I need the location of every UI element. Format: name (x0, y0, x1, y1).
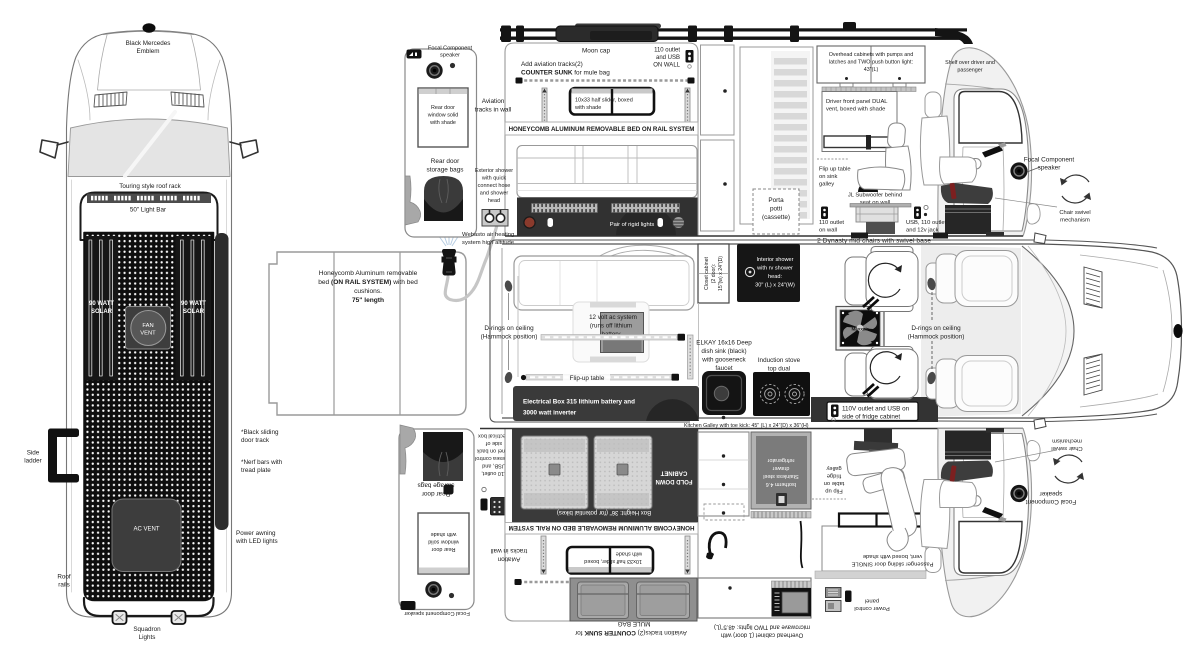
svg-text:Induction stove: Induction stove (758, 357, 801, 364)
svg-text:15"(w) x 24"(D): 15"(w) x 24"(D) (718, 256, 724, 291)
svg-text:Flip up: Flip up (825, 488, 842, 494)
svg-text:HONEYCOMB ALUMINUM REMOVABLE B: HONEYCOMB ALUMINUM REMOVABLE BED ON RAIL… (509, 524, 695, 531)
svg-text:connect hose: connect hose (478, 183, 511, 189)
svg-text:12 volt ac system: 12 volt ac system (589, 314, 637, 321)
svg-text:faucet: faucet (715, 365, 732, 372)
svg-text:fridge: fridge (827, 473, 842, 479)
svg-text:with shade: with shade (616, 551, 643, 557)
svg-text:potti: potti (770, 206, 782, 213)
svg-text:JL Subwoofer behind: JL Subwoofer behind (848, 193, 902, 199)
svg-text:Overhead cabinet (1 door) with: Overhead cabinet (1 door) with (721, 632, 803, 638)
svg-text:tracks in wall: tracks in wall (475, 107, 512, 114)
svg-text:storage bags: storage bags (427, 167, 464, 174)
svg-text:Add aviation tracks(2): Add aviation tracks(2) (521, 61, 583, 68)
svg-text:SOLAR: SOLAR (91, 309, 113, 315)
svg-text:SOLAR: SOLAR (183, 309, 205, 315)
svg-text:mechanism: mechanism (1060, 218, 1090, 224)
svg-text:drawer: drawer (772, 465, 789, 471)
svg-text:dish sink (black): dish sink (black) (701, 348, 746, 355)
svg-text:110 outlet,: 110 outlet, (481, 470, 507, 476)
svg-text:with LED lights: with LED lights (235, 538, 278, 545)
svg-text:with shade: with shade (429, 120, 456, 126)
svg-text:panel: panel (865, 598, 879, 604)
svg-text:110 outlet: 110 outlet (819, 220, 844, 226)
svg-text:and shower: and shower (480, 191, 509, 197)
svg-text:43"(L): 43"(L) (864, 67, 879, 73)
svg-text:Focal Component: Focal Component (1024, 157, 1075, 164)
svg-text:mechanism: mechanism (1052, 438, 1082, 444)
svg-text:Rear door: Rear door (431, 158, 460, 165)
svg-text:passenger: passenger (957, 68, 982, 74)
svg-text:ladder: ladder (24, 458, 42, 465)
svg-text:(2 door):: (2 door): (711, 264, 717, 284)
svg-text:table on: table on (824, 480, 845, 486)
svg-text:with shade: with shade (574, 105, 601, 111)
svg-text:Lights: Lights (139, 634, 156, 641)
svg-text:speaker: speaker (1038, 165, 1062, 172)
svg-text:window solid: window solid (427, 113, 459, 119)
svg-text:cushions.: cushions. (354, 288, 382, 295)
svg-text:Interior shower: Interior shower (757, 257, 794, 263)
svg-text:microwave and TWO lights: 48.5: microwave and TWO lights: 48.5"(L) (714, 624, 810, 630)
svg-text:MULE BAG: MULE BAG (617, 620, 650, 627)
svg-text:3000 watt inverter: 3000 watt inverter (523, 410, 577, 417)
svg-text:Rear door: Rear door (421, 490, 450, 497)
svg-text:Power awning: Power awning (236, 530, 276, 537)
svg-text:Electrical Box 315 lithium bat: Electrical Box 315 lithium battery and (523, 399, 635, 406)
svg-text:Aviation: Aviation (497, 556, 520, 563)
svg-text:(runs off lithium: (runs off lithium (590, 323, 632, 330)
svg-text:Aviation tracks(2) COUNTER SUN: Aviation tracks(2) COUNTER SUNK for (574, 629, 687, 636)
svg-text:Maxxair: Maxxair (851, 327, 868, 332)
svg-text:speaker: speaker (1039, 490, 1063, 497)
svg-text:USB, 110 outlet: USB, 110 outlet (906, 220, 947, 226)
svg-text:side of fridge cabinet: side of fridge cabinet (842, 414, 900, 421)
svg-text:with rv shower: with rv shower (756, 266, 793, 272)
svg-text:Rear door: Rear door (431, 546, 455, 552)
svg-text:on sink: on sink (819, 174, 837, 180)
svg-text:COUNTER SUNK for mule bag: COUNTER SUNK for mule bag (521, 70, 610, 77)
svg-text:latches and TWO push button li: latches and TWO push button light: (829, 60, 913, 66)
svg-text:VENT: VENT (140, 331, 156, 337)
svg-text:door track: door track (241, 437, 270, 444)
svg-text:Roof: Roof (57, 574, 71, 581)
svg-text:rails: rails (58, 582, 70, 589)
svg-text:10x33 half slider, boxed: 10x33 half slider, boxed (584, 558, 642, 564)
svg-text:110 outlet: 110 outlet (654, 48, 680, 54)
svg-text:110V outlet and USB on: 110V outlet and USB on (842, 406, 910, 413)
svg-text:system high altitude: system high altitude (462, 240, 515, 246)
svg-text:30" (L) x 24"(W): 30" (L) x 24"(W) (755, 283, 795, 289)
svg-text:FAN: FAN (142, 323, 153, 329)
svg-text:Touring style roof rack: Touring style roof rack (119, 183, 181, 190)
svg-text:galley: galley (819, 182, 834, 188)
svg-text:(cassette): (cassette) (762, 214, 790, 221)
svg-text:90 WATT: 90 WATT (181, 301, 206, 307)
svg-text:HONEYCOMB ALUMINUM REMOVABLE B: HONEYCOMB ALUMINUM REMOVABLE BED ON RAIL… (509, 126, 695, 133)
svg-text:on wall: on wall (819, 228, 837, 234)
svg-text:head:: head: (768, 274, 782, 280)
svg-text:Power control: Power control (854, 605, 889, 611)
svg-text:Driver front panel DUAL: Driver front panel DUAL (826, 99, 888, 105)
svg-text:(Hammock position): (Hammock position) (908, 334, 965, 341)
svg-text:galley: galley (826, 465, 841, 471)
svg-text:Aviation: Aviation (482, 98, 505, 105)
svg-text:USB, and: USB, and (482, 463, 506, 469)
svg-text:Closet cabinet: Closet cabinet (704, 257, 710, 290)
svg-text:top dual: top dual (768, 366, 790, 373)
svg-text:FOLD DOWN: FOLD DOWN (656, 478, 693, 484)
svg-text:with gooseneck: with gooseneck (701, 357, 746, 364)
svg-text:Porta: Porta (768, 197, 784, 204)
svg-text:50" Light Bar: 50" Light Bar (130, 207, 166, 214)
svg-text:AC VENT: AC VENT (133, 527, 159, 533)
svg-text:Chair swivel: Chair swivel (1059, 210, 1090, 216)
svg-text:and USB: and USB (656, 55, 680, 61)
svg-text:Rear door: Rear door (431, 105, 455, 111)
svg-text:ON WALL: ON WALL (653, 63, 680, 69)
svg-text:75" length: 75" length (352, 297, 384, 304)
svg-text:vent, boxed with shade: vent, boxed with shade (863, 553, 922, 559)
svg-text:Squadron: Squadron (133, 626, 161, 633)
svg-text:D-rings on ceiling: D-rings on ceiling (911, 325, 961, 332)
svg-text:Moon cap: Moon cap (582, 48, 611, 55)
svg-text:Stainless steel: Stainless steel (763, 473, 798, 479)
svg-text:Passenger sliding door SINGLE: Passenger sliding door SINGLE (851, 561, 933, 567)
svg-text:storage bags: storage bags (418, 482, 455, 489)
svg-text:refrigerator: refrigerator (767, 457, 794, 463)
svg-text:with quick: with quick (481, 176, 506, 182)
svg-text:10x33 half slider, boxed: 10x33 half slider, boxed (575, 98, 633, 104)
svg-text:Honeycomb Aluminum removable: Honeycomb Aluminum removable (319, 270, 418, 277)
svg-text:Pair of rigid lights: Pair of rigid lights (610, 222, 655, 228)
svg-text:Side: Side (27, 450, 40, 457)
svg-text:Webasto air heating: Webasto air heating (462, 232, 514, 238)
svg-text:90 WATT: 90 WATT (89, 301, 114, 307)
svg-text:speaker: speaker (440, 53, 460, 59)
svg-text:*Nerf bars with: *Nerf bars with (241, 459, 283, 466)
svg-text:with shade: with shade (431, 531, 458, 537)
svg-text:window solid: window solid (428, 539, 460, 545)
svg-text:Emblem: Emblem (136, 48, 159, 55)
svg-text:Exterior shower: Exterior shower (475, 168, 513, 174)
svg-text:Overhead cabinets with pumps a: Overhead cabinets with pumps and (829, 52, 914, 58)
svg-text:Flip-up table: Flip-up table (570, 375, 605, 382)
svg-text:CABINET: CABINET (660, 470, 687, 476)
svg-text:bed (ON RAIL SYSTEM) with bed: bed (ON RAIL SYSTEM) with bed (318, 279, 418, 286)
svg-text:Box Height: 36" (for potential: Box Height: 36" (for potential bikes) (557, 509, 651, 515)
svg-text:side of: side of (485, 440, 502, 446)
svg-text:vent, boxed with shade: vent, boxed with shade (826, 107, 885, 113)
svg-text:head: head (488, 198, 500, 204)
svg-text:Flip up table: Flip up table (819, 167, 851, 173)
svg-text:Focal Component: Focal Component (428, 46, 473, 52)
svg-text:tracks in wall: tracks in wall (491, 547, 528, 554)
svg-text:Shelf over driver and: Shelf over driver and (945, 60, 995, 66)
svg-text:Black Mercedes: Black Mercedes (126, 40, 171, 47)
svg-text:Focal Component speaker: Focal Component speaker (404, 610, 470, 616)
svg-text:tread plate: tread plate (241, 467, 271, 474)
svg-text:(Hammock position): (Hammock position) (481, 334, 538, 341)
svg-text:ELKAY 16x16 Deep: ELKAY 16x16 Deep (696, 340, 752, 347)
svg-text:Focal Component: Focal Component (1026, 498, 1077, 505)
svg-text:D-rings on ceiling: D-rings on ceiling (484, 325, 534, 332)
svg-text:Isotherm 4.6: Isotherm 4.6 (766, 481, 797, 487)
svg-text:*Black sliding: *Black sliding (241, 429, 279, 436)
